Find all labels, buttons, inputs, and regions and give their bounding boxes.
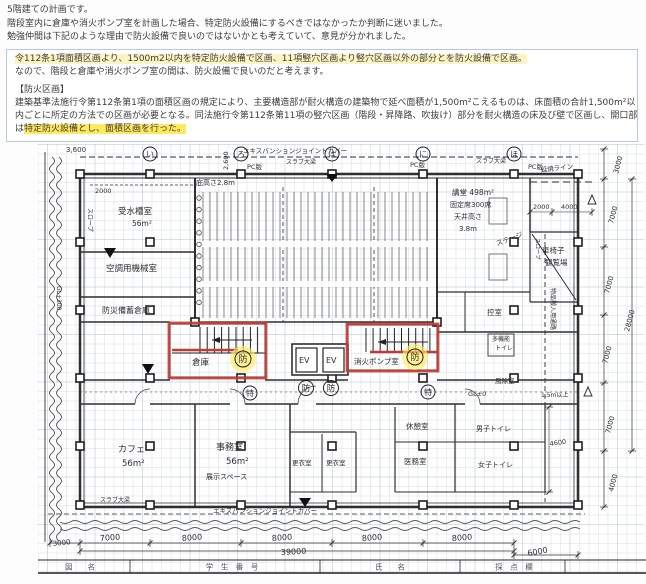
column [510,501,518,509]
plan-label: 展示スペース [206,473,247,481]
plan-label: カフェ [118,444,145,455]
symbol-circle-label: 特 [246,387,254,397]
plan-label: 天井高さ [454,212,482,221]
plan-label: スロープ [86,208,93,232]
plan-label: 39000 [281,546,307,556]
column [328,501,336,509]
plan-label: 倉庫 [192,357,210,368]
intro-line-1: 5階建ての計画です。 [7,4,646,18]
aisle-gap [197,281,435,287]
title-block-label: 図 名 [65,561,95,571]
column [574,306,582,314]
plan-label: 8000 [182,532,203,542]
title-block-label: 採 点 欄 [495,561,533,571]
column [328,442,336,450]
intro-line-2: 階段室内に倉庫や消火ポンプ室を計画した場合、特定防火設備にするべきではなかったか… [7,18,646,32]
column [419,442,427,450]
plan-label: PC版 [247,162,262,171]
plan-label: エキスパンションジョイントカバー [243,147,347,155]
column [146,501,154,509]
plan-label: スラブ大梁 [286,158,316,166]
column [76,238,84,246]
plan-label: EV [299,356,310,365]
symbol-circle-label: 防 [327,383,336,394]
column [76,170,84,178]
plan-label: GL+300 [55,286,62,311]
note-line-1: 令112条1項面積区画より、1500m2以内を特定防火設備で区画、11項竪穴区画… [15,53,629,66]
symbol-circle-label: ほ [510,149,518,158]
hand-drawn-floor-plan: いろはにほ防防防防特特 3,600エキスパンションジョイントカバー2,600庇高… [0,144,646,580]
intro-line-3: 勉強仲間は下記のような理由で防火設備で良いのではないかとも考えていて、意見が分か… [7,31,646,45]
column [574,442,582,450]
column [146,238,154,246]
column [419,501,427,509]
note-body-1: 建築基準法施行令第112条第1項の面積区画の規定により、主要構造部が耐火構造の建… [15,97,629,110]
plan-label: エキスパンションジョイントカバー [213,507,317,515]
plan-label: スロープ [534,238,541,260]
plan-label: 7000 [100,532,121,542]
column [76,306,84,314]
plan-label: GL±0 [468,390,486,398]
symbol-circle-label: 防 [302,383,311,394]
plan-label: 女子トイレ [478,460,513,469]
plan-label: 車椅子 [542,245,565,255]
plan-label: 事務室 [216,441,243,453]
plan-label: 2,600 [222,151,230,170]
column [574,501,582,509]
column [574,170,582,178]
symbol-circle-label: に [419,149,427,158]
column [510,442,518,450]
plan-label: 8000 [272,532,293,542]
plan-label: 4000 [561,203,578,211]
plan-label: 観覧場 [545,257,568,267]
fire-compartment-note-box: 令112条1項面積区画より、1500m2以内を特定防火設備で区画、11項竪穴区画… [6,49,638,142]
plan-label: 風除室 [495,376,515,385]
column [419,374,427,382]
column [76,442,84,450]
plan-label: 控室 [487,307,502,317]
note-body-3: は特定防火設備とし、面積区画を行った。 [15,123,629,136]
note-line-2: なので、階段と倉庫や消火ポンプ室の間は、防火設備で良いのだと考えます。 [15,66,629,79]
plan-label: 物品搬入用通路 [549,288,557,330]
column [510,170,518,178]
plan-label: 3.8m [459,225,477,233]
column [146,374,154,382]
plan-label: 受水槽室 [118,206,153,217]
plan-label: 3,600 [66,146,86,154]
column [574,238,582,246]
column [76,501,84,509]
plan-label: 56m² [132,219,152,228]
column [146,442,154,450]
title-block-label: 氏 名 [375,561,405,571]
floor-plan-image: いろはにほ防防防防特特 3,600エキスパンションジョイントカバー2,600庇高… [0,144,646,584]
column [510,306,518,314]
plan-label: 休憩室 [406,421,429,431]
plan-label: 8000 [362,532,383,542]
column [146,170,154,178]
symbol-circle-label: 防 [238,353,247,365]
plan-label: 庇高さ2.8m [196,178,235,187]
column [419,170,427,178]
plan-label: PC版 [410,160,425,169]
column [574,374,582,382]
symbol-circle-label: 特 [424,386,432,396]
column [237,170,245,178]
plan-label: スラブ大梁 [476,157,506,165]
plan-label: 固定席300席 [450,200,491,209]
plan-label: EV [326,356,337,365]
plan-label: 講堂 498m² [452,187,494,197]
plan-label: 多機能 [492,335,510,343]
plan-label: 更衣室 [292,458,312,467]
plan-label: 8000 [452,532,473,542]
plan-label: スラブ大梁 [100,496,130,504]
title-block-label: 学 生 番 号 [206,561,259,571]
plan-label: 男子トイレ [476,425,511,433]
symbol-circle-label: 防 [410,351,419,363]
plan-label: 防災備蓄倉庫 [102,305,150,315]
aisle-gap [197,241,435,247]
symbol-circle-label: い [146,149,154,158]
plan-label: 消火ポンプ室 [354,356,399,366]
question-text: 5階建ての計画です。 階段室内に倉庫や消火ポンプ室を計画した場合、特定防火設備に… [0,0,646,45]
plan-label: 医務室 [404,456,427,466]
plan-label: 56m² [122,459,145,469]
plan-label: 空調用機械室 [106,263,158,274]
note-heading: 【防火区画】 [15,84,629,97]
plan-label: トイレ [495,345,513,352]
plan-label: 更衣室 [326,458,346,467]
plan-label: 2000 [95,187,112,195]
note-body-2: 内ごとに所定の方法での区画が必要となる。同法施行令第112条第11項の竪穴区画（… [15,110,629,123]
plan-label: 1.5m以上 [541,391,568,399]
column [76,374,84,382]
plan-label: 2000 [533,203,550,211]
plan-label: 56m² [226,457,249,467]
